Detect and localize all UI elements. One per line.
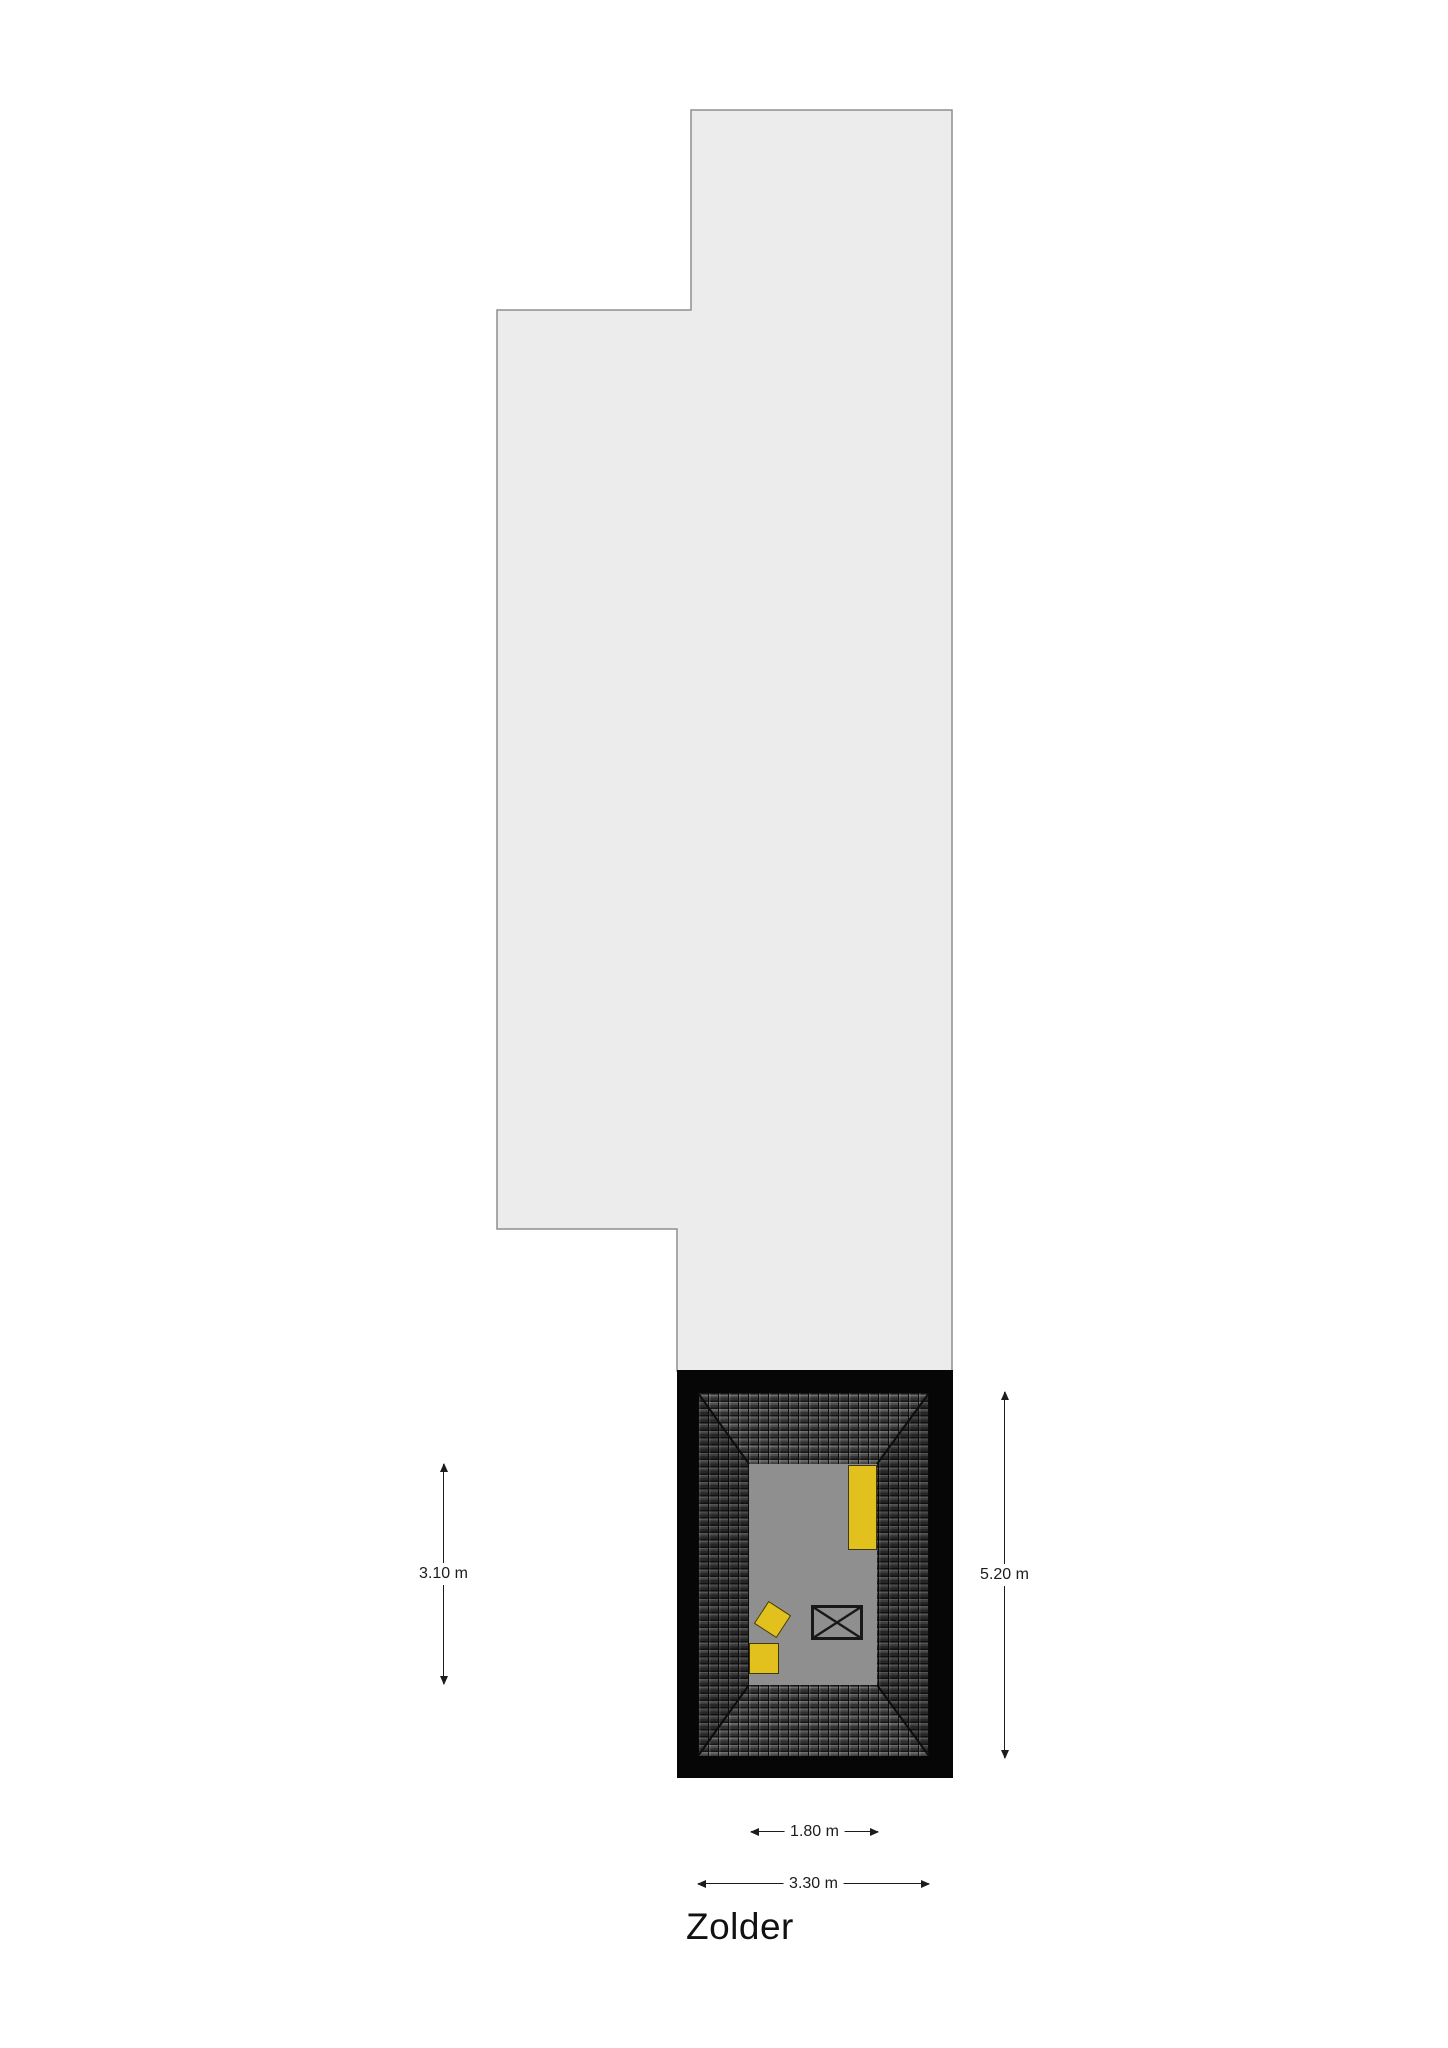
arrow-up-icon [1001, 1391, 1009, 1400]
arrow-left-icon [697, 1880, 706, 1888]
dimension-label: 3.30 m [783, 1873, 844, 1895]
room-zolder [677, 1370, 953, 1778]
dimension-label: 5.20 m [974, 1564, 1035, 1586]
arrow-down-icon [440, 1676, 448, 1685]
arrow-right-icon [921, 1880, 930, 1888]
dimension-outer-width: 3.30 m [698, 1883, 929, 1884]
dimension-inner-width: 1.80 m [751, 1831, 878, 1832]
dimension-label: 1.80 m [784, 1821, 845, 1843]
arrow-down-icon [1001, 1750, 1009, 1759]
room-title: Zolder [686, 1907, 794, 1948]
attic-footprint-polygon [497, 110, 952, 1371]
arrow-up-icon [440, 1463, 448, 1472]
arrow-right-icon [870, 1828, 879, 1836]
furniture-tall-cabinet [848, 1465, 877, 1550]
crossed-fixture [811, 1605, 863, 1640]
arrow-left-icon [750, 1828, 759, 1836]
dimension-outer-height: 5.20 m [1004, 1392, 1005, 1758]
dimension-label: 3.10 m [413, 1563, 474, 1585]
dimension-inner-height: 3.10 m [443, 1464, 444, 1684]
furniture-box [749, 1643, 779, 1674]
floorplan-canvas: 3.10 m 5.20 m 1.80 m 3.30 m Zolder [0, 0, 1448, 2048]
